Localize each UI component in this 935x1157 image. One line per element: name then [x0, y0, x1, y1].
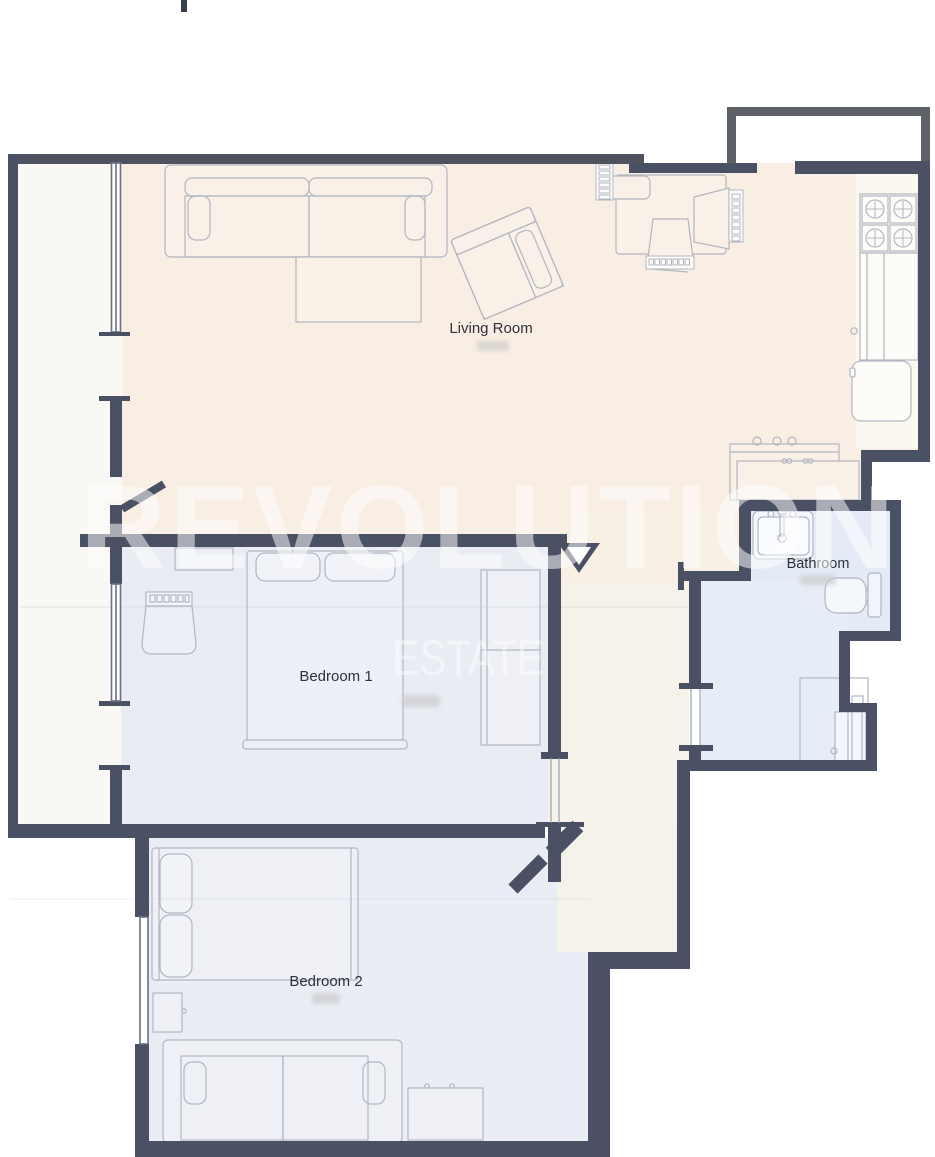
svg-text:REVOLUTION: REVOLUTION [80, 461, 898, 594]
svg-text:Bedroom 2: Bedroom 2 [289, 973, 362, 990]
svg-text:Living Room: Living Room [449, 320, 532, 337]
svg-text:ESTATE: ESTATE [392, 630, 543, 686]
svg-text:Bedroom 1: Bedroom 1 [299, 668, 372, 685]
